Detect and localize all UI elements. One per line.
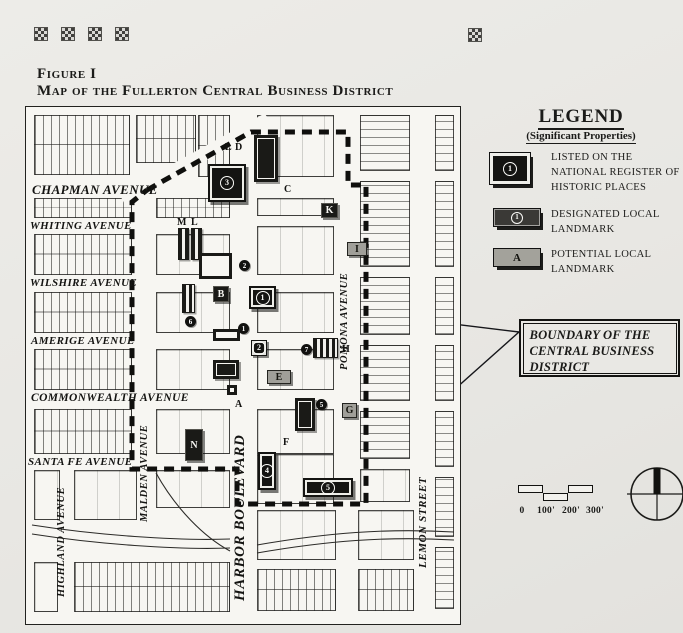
landmark-register-2: 2 <box>251 340 267 356</box>
scale-label-100: 100' <box>533 506 559 516</box>
landmark-label-H: H <box>342 344 350 355</box>
landmark-letter-B: B <box>213 286 229 302</box>
landmark-register-3: 3 <box>208 164 246 202</box>
circled-number: 1 <box>256 291 270 305</box>
scale-segment <box>568 485 593 493</box>
legend-item-potential-label: POTENTIAL LOCAL LANDMARK <box>551 247 681 277</box>
scale-label-200: 200' <box>558 506 584 516</box>
landmark-register-4: 4 <box>258 452 276 490</box>
page-ornament-icon <box>468 28 482 42</box>
scale-bar: 0 100' 200' 300' <box>510 484 620 518</box>
scale-label-300: 300' <box>582 506 608 516</box>
landmark-label-C: C <box>284 184 291 195</box>
page-ornament-icon <box>61 27 75 41</box>
landmark-letter-K: K <box>321 203 338 218</box>
north-arrow-icon <box>626 462 683 526</box>
landmark-register-dot-5: 5 <box>316 399 327 410</box>
legend-title: LEGEND <box>519 106 643 128</box>
landmark-label-L: L <box>225 142 232 153</box>
page-ornament-icon <box>88 27 102 41</box>
national-register-icon: 1 <box>489 152 529 183</box>
legend-subtitle: (Significant Properties) <box>519 130 643 142</box>
building <box>182 284 195 313</box>
landmark-label-F: F <box>283 437 289 448</box>
boundary-callout: BOUNDARY OF THE CENTRAL BUSINESS DISTRIC… <box>519 319 680 377</box>
map-panel: CHAPMAN AVENUEWHITING AVENUEWILSHIRE AVE… <box>25 106 461 625</box>
legend-item-designated-label: DESIGNATED LOCAL LANDMARK <box>551 207 681 237</box>
circled-number: 5 <box>321 481 335 495</box>
landmark-letter-G: G <box>342 403 357 418</box>
circled-number: 2 <box>252 341 266 355</box>
building <box>178 228 189 260</box>
landmark-letter-E: E <box>267 370 291 384</box>
landmark-label-L: L <box>191 217 198 228</box>
building <box>295 398 315 431</box>
landmark-label-M: M <box>177 217 186 228</box>
page-ornament-icon <box>34 27 48 41</box>
scale-segment <box>543 493 568 501</box>
landmark-register-1: 1 <box>249 286 276 309</box>
boundary-callout-text: BOUNDARY OF THE CENTRAL BUSINESS DISTRIC… <box>523 323 677 374</box>
building <box>254 135 278 182</box>
landmark-register-dot-6: 6 <box>185 316 196 327</box>
scale-segment <box>518 485 543 493</box>
page-ornament-icon <box>115 27 129 41</box>
landmark-register-5: 5 <box>303 478 353 497</box>
circled-number: 3 <box>220 176 234 190</box>
figure-label: Figure I <box>37 66 97 83</box>
potential-landmark-icon: A <box>493 248 539 265</box>
circled-number: 4 <box>260 464 274 478</box>
landmark-letter-I: I <box>347 242 367 256</box>
building <box>199 253 232 279</box>
building <box>313 338 338 358</box>
landmark-label-D: D <box>235 142 242 153</box>
designated-landmark-icon: 1 <box>493 208 539 225</box>
building <box>227 385 237 395</box>
map-landmarks: 3CLDMLKI2B61127HEA5GFN45 <box>26 107 460 624</box>
landmark-letter-N: N <box>185 429 203 461</box>
landmark-register-dot-2: 2 <box>239 260 250 271</box>
legend-item-national-label: LISTED ON THE NATIONAL REGISTER OF HISTO… <box>551 150 681 195</box>
landmark-label-A: A <box>235 399 242 410</box>
building <box>213 360 239 379</box>
scale-label-0: 0 <box>509 506 535 516</box>
landmark-register-dot-7: 7 <box>301 344 312 355</box>
figure-title: Map of the Fullerton Central Business Di… <box>37 83 393 100</box>
building <box>213 329 240 341</box>
